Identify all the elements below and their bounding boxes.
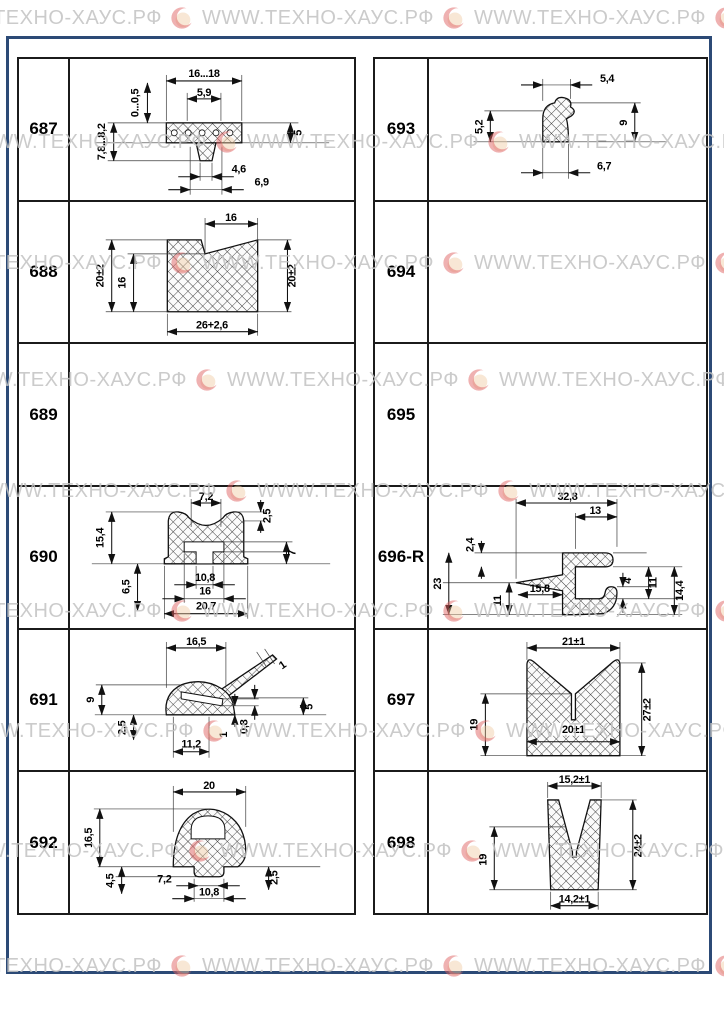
dim-label: 11 (648, 577, 660, 588)
profile-svg-687: 16...18 5,9 0...0,5 7,8...8,2 5 4,6 6,9 (70, 59, 354, 200)
dim-label: 20,7 (196, 601, 216, 613)
dim-label: 19 (477, 854, 489, 866)
profile-drawing-694-empty (429, 202, 706, 343)
profile-svg-692: 20 16,5 4,5 7,2 10,8 2,5 (70, 772, 354, 913)
dim-label: 11 (492, 595, 504, 606)
dim-label: 5 (292, 130, 304, 136)
part-number: 695 (375, 344, 429, 485)
profile-drawing-697: 21±1 19 20±1 27±2 (429, 630, 706, 771)
dim-label: 20±1 (562, 723, 585, 735)
dim-label: 23 (432, 578, 444, 590)
dim-label: 16,5 (186, 636, 206, 648)
dim-label: 2,4 (465, 537, 477, 552)
dim-label: 9 (618, 120, 630, 126)
dim-label: 0,8 (239, 719, 251, 734)
dim-label: 15,8 (530, 583, 550, 595)
brand-swirl-icon (714, 599, 724, 623)
profile-drawing-690: 7,2 2,5 15,4 6,5 7 10,8 16 20,7 (70, 487, 354, 628)
watermark-text: WWW.ТЕХНО-ХАУС.РФ (0, 7, 162, 30)
table-row: 698 15,2±1 19 24± (375, 772, 706, 913)
dim-label: 32,8 (558, 491, 578, 503)
dim-label: 16 (117, 276, 129, 288)
dim-label: 7,8...8,2 (96, 123, 108, 160)
profile-svg-690: 7,2 2,5 15,4 6,5 7 10,8 16 20,7 (70, 487, 354, 628)
part-number: 698 (375, 772, 429, 913)
dim-label: 6,5 (121, 579, 133, 594)
dim-label: 5,2 (473, 119, 485, 134)
dim-label: 2,5 (117, 720, 129, 735)
dim-label: 21±1 (562, 636, 585, 648)
table-row: 697 21±1 19 20±1 (375, 630, 706, 773)
profiles-table-right: 693 (373, 57, 708, 915)
profile-drawing-692: 20 16,5 4,5 7,2 10,8 2,5 (70, 772, 354, 913)
profile-shape (173, 810, 245, 878)
part-number: 697 (375, 630, 429, 771)
dim-label: 7 (286, 550, 298, 556)
dim-label: 10,8 (195, 572, 215, 584)
table-row: 691 (19, 630, 354, 773)
profile-svg-698: 15,2±1 19 24±2 14,2±1 (429, 772, 706, 913)
dim-label: 15,2±1 (559, 774, 591, 786)
table-row: 696-R (375, 487, 706, 630)
watermark-row: WWW.ТЕХНО-ХАУС.РФWWW.ТЕХНО-ХАУС.РФWWW.ТЕ… (0, 6, 724, 30)
profile-shape (166, 655, 277, 715)
dim-label: 14,2±1 (559, 894, 591, 906)
dim-label: 1 (218, 731, 230, 737)
table-row: 688 16 (19, 202, 354, 345)
profiles-table-left: 687 (17, 57, 356, 915)
profile-shape (548, 800, 601, 890)
table-row: 694 (375, 202, 706, 345)
brand-swirl-icon (714, 954, 724, 978)
profile-shape (164, 512, 247, 564)
profile-drawing-689-empty (70, 344, 354, 485)
dim-label: 16...18 (188, 68, 219, 80)
watermark-text: WWW.ТЕХНО-ХАУС.РФ (202, 7, 434, 30)
profile-drawing-691: 16,5 9 2,5 11,2 1 5 0,8 1 (70, 630, 354, 771)
dim-label: 15,4 (95, 527, 107, 548)
profile-drawing-693: 5,4 5,2 9 6,7 (429, 59, 706, 200)
dim-label: 4 (622, 578, 634, 584)
part-number: 690 (19, 487, 70, 628)
part-number: 693 (375, 59, 429, 200)
dim-label: 4,5 (105, 874, 117, 889)
brand-swirl-icon (714, 6, 724, 30)
profile-svg-688: 16 20±2 16 20±2 26+2,6 (70, 202, 354, 343)
profile-svg-696R: 32,8 13 2,4 23 11 15,8 4 11 14,4 (429, 487, 706, 628)
table-row: 692 (19, 772, 354, 913)
part-number: 696-R (375, 487, 429, 628)
dim-label: 9 (85, 696, 97, 702)
profile-svg-697: 21±1 19 20±1 27±2 (429, 630, 706, 771)
table-row: 693 (375, 59, 706, 202)
profile-drawing-687: 16...18 5,9 0...0,5 7,8...8,2 5 4,6 6,9 (70, 59, 354, 200)
part-number: 688 (19, 202, 70, 343)
table-row: 687 (19, 59, 354, 202)
dim-label: 20±2 (286, 264, 298, 287)
table-row: 690 (19, 487, 354, 630)
dim-label: 4,6 (232, 164, 246, 176)
part-number: 687 (19, 59, 70, 200)
dim-label: 20±2 (95, 264, 107, 287)
dim-label: 19 (469, 718, 481, 730)
catalog-page: 687 (0, 0, 724, 1024)
dim-label: 1 (277, 658, 289, 671)
dim-label: 6,7 (597, 161, 611, 173)
part-number: 694 (375, 202, 429, 343)
dim-label: 14,4 (674, 580, 686, 600)
part-number: 691 (19, 630, 70, 771)
dim-label: 5,4 (600, 73, 614, 85)
dim-label: 0...0,5 (130, 88, 142, 117)
table-row: 695 (375, 344, 706, 487)
dim-label: 16 (225, 212, 237, 224)
dim-label: 2,5 (269, 871, 281, 886)
profile-shape (167, 240, 257, 312)
dim-label: 24±2 (633, 834, 645, 857)
profile-drawing-698: 15,2±1 19 24±2 14,2±1 (429, 772, 706, 913)
watermark-text: WWW.ТЕХНО-ХАУС.РФ (474, 7, 706, 30)
dim-label: 10,8 (199, 887, 219, 899)
dim-label: 20 (203, 780, 215, 792)
profile-shape (166, 123, 241, 161)
dim-label: 26+2,6 (196, 319, 228, 331)
dim-label: 16 (199, 586, 211, 598)
profile-shape (543, 97, 574, 141)
part-number: 692 (19, 772, 70, 913)
dim-label: 5 (303, 703, 315, 709)
profile-drawing-695-empty (429, 344, 706, 485)
profile-drawing-688: 16 20±2 16 20±2 26+2,6 (70, 202, 354, 343)
dim-label: 7,2 (199, 491, 213, 503)
dim-label: 16,5 (83, 828, 95, 848)
dim-label: 27±2 (642, 698, 654, 721)
dim-label: 6,9 (255, 177, 269, 189)
brand-swirl-icon (170, 6, 194, 30)
dim-label: 2,5 (262, 509, 274, 524)
profile-drawing-696R: 32,8 13 2,4 23 11 15,8 4 11 14,4 (429, 487, 706, 628)
brand-swirl-icon (714, 251, 724, 275)
dim-label: 5,9 (197, 87, 211, 99)
part-number: 689 (19, 344, 70, 485)
brand-swirl-icon (442, 6, 466, 30)
table-row: 689 (19, 344, 354, 487)
dim-label: 13 (589, 505, 601, 517)
profile-svg-693: 5,4 5,2 9 6,7 (429, 59, 706, 200)
dim-label: 7,2 (157, 874, 171, 886)
dim-label: 11,2 (181, 738, 201, 750)
profile-svg-691: 16,5 9 2,5 11,2 1 5 0,8 1 (70, 630, 354, 771)
